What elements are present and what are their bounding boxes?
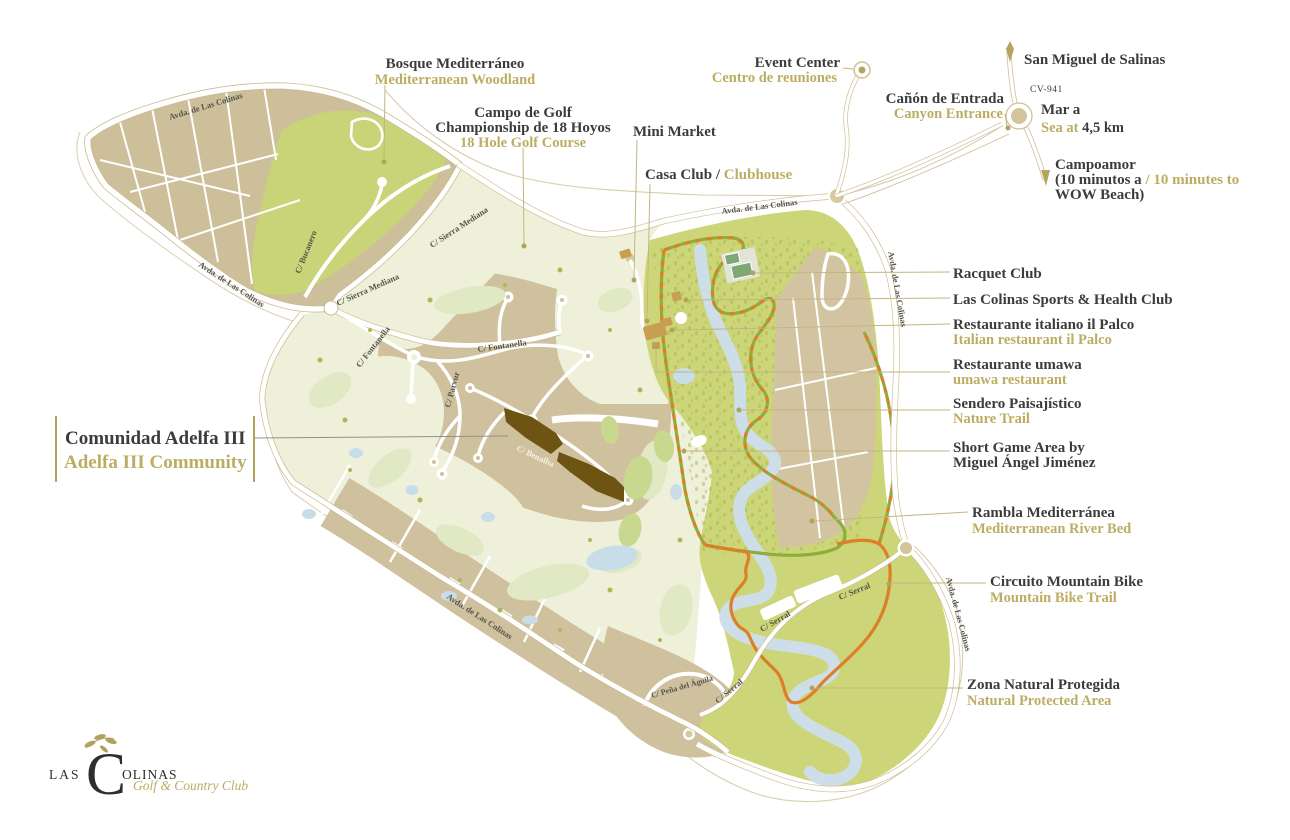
svg-text:Golf & Country Club: Golf & Country Club [133,778,248,793]
svg-text:Circuito Mountain Bike: Circuito Mountain Bike [990,574,1143,590]
svg-text:Canyon Entrance: Canyon Entrance [894,106,1004,122]
svg-text:Mini Market: Mini Market [633,124,716,140]
svg-text:Championship de 18 Hoyos: Championship de 18 Hoyos [435,120,611,136]
svg-text:CV-941: CV-941 [1030,85,1063,95]
svg-text:Event Center: Event Center [755,55,841,71]
svg-text:San Miguel de Salinas: San Miguel de Salinas [1024,52,1165,68]
svg-text:Miguel Ángel Jiménez: Miguel Ángel Jiménez [953,454,1096,471]
svg-text:Campo de Golf: Campo de Golf [474,105,573,121]
svg-text:Campoamor: Campoamor [1055,157,1136,173]
svg-text:WOW Beach): WOW Beach) [1055,187,1144,203]
svg-text:Mountain Bike Trail: Mountain Bike Trail [990,590,1117,606]
svg-text:Rambla Mediterránea: Rambla Mediterránea [972,505,1115,521]
svg-text:Italian restaurant il Palco: Italian restaurant il Palco [953,332,1112,348]
svg-text:18 Hole Golf Course: 18 Hole Golf Course [460,135,587,151]
svg-text:Short Game Area by: Short Game Area by [953,440,1085,456]
svg-text:Bosque Mediterráneo: Bosque Mediterráneo [386,56,525,72]
svg-text:Cañón de Entrada: Cañón de Entrada [886,91,1005,107]
svg-text:Nature Trail: Nature Trail [953,411,1030,427]
svg-text:Las Colinas Sports & Health Cl: Las Colinas Sports & Health Club [953,292,1173,308]
svg-text:(10 minutos a / 10 minutes to: (10 minutos a / 10 minutes to [1055,172,1239,188]
svg-text:LAS: LAS [49,767,81,782]
svg-text:umawa restaurant: umawa restaurant [953,372,1067,388]
svg-text:Casa Club / Clubhouse: Casa Club / Clubhouse [645,167,792,183]
svg-text:Zona Natural Protegida: Zona Natural Protegida [967,677,1121,693]
svg-text:Racquet Club: Racquet Club [953,266,1042,282]
svg-text:Mediterranean River Bed: Mediterranean River Bed [972,521,1131,537]
svg-text:Mediterranean Woodland: Mediterranean Woodland [375,72,535,88]
svg-text:Adelfa III Community: Adelfa III Community [64,452,247,473]
svg-text:Restaurante italiano il Palco: Restaurante italiano il Palco [953,317,1134,333]
svg-text:Sendero Paisajístico: Sendero Paisajístico [953,396,1081,412]
svg-text:Mar a: Mar a [1041,102,1081,118]
svg-text:Natural Protected Area: Natural Protected Area [967,693,1112,709]
svg-text:Sea at 4,5 km: Sea at 4,5 km [1041,120,1124,136]
svg-text:Centro de reuniones: Centro de reuniones [712,70,837,86]
svg-text:Restaurante umawa: Restaurante umawa [953,357,1082,373]
svg-text:Comunidad Adelfa III: Comunidad Adelfa III [65,428,246,449]
